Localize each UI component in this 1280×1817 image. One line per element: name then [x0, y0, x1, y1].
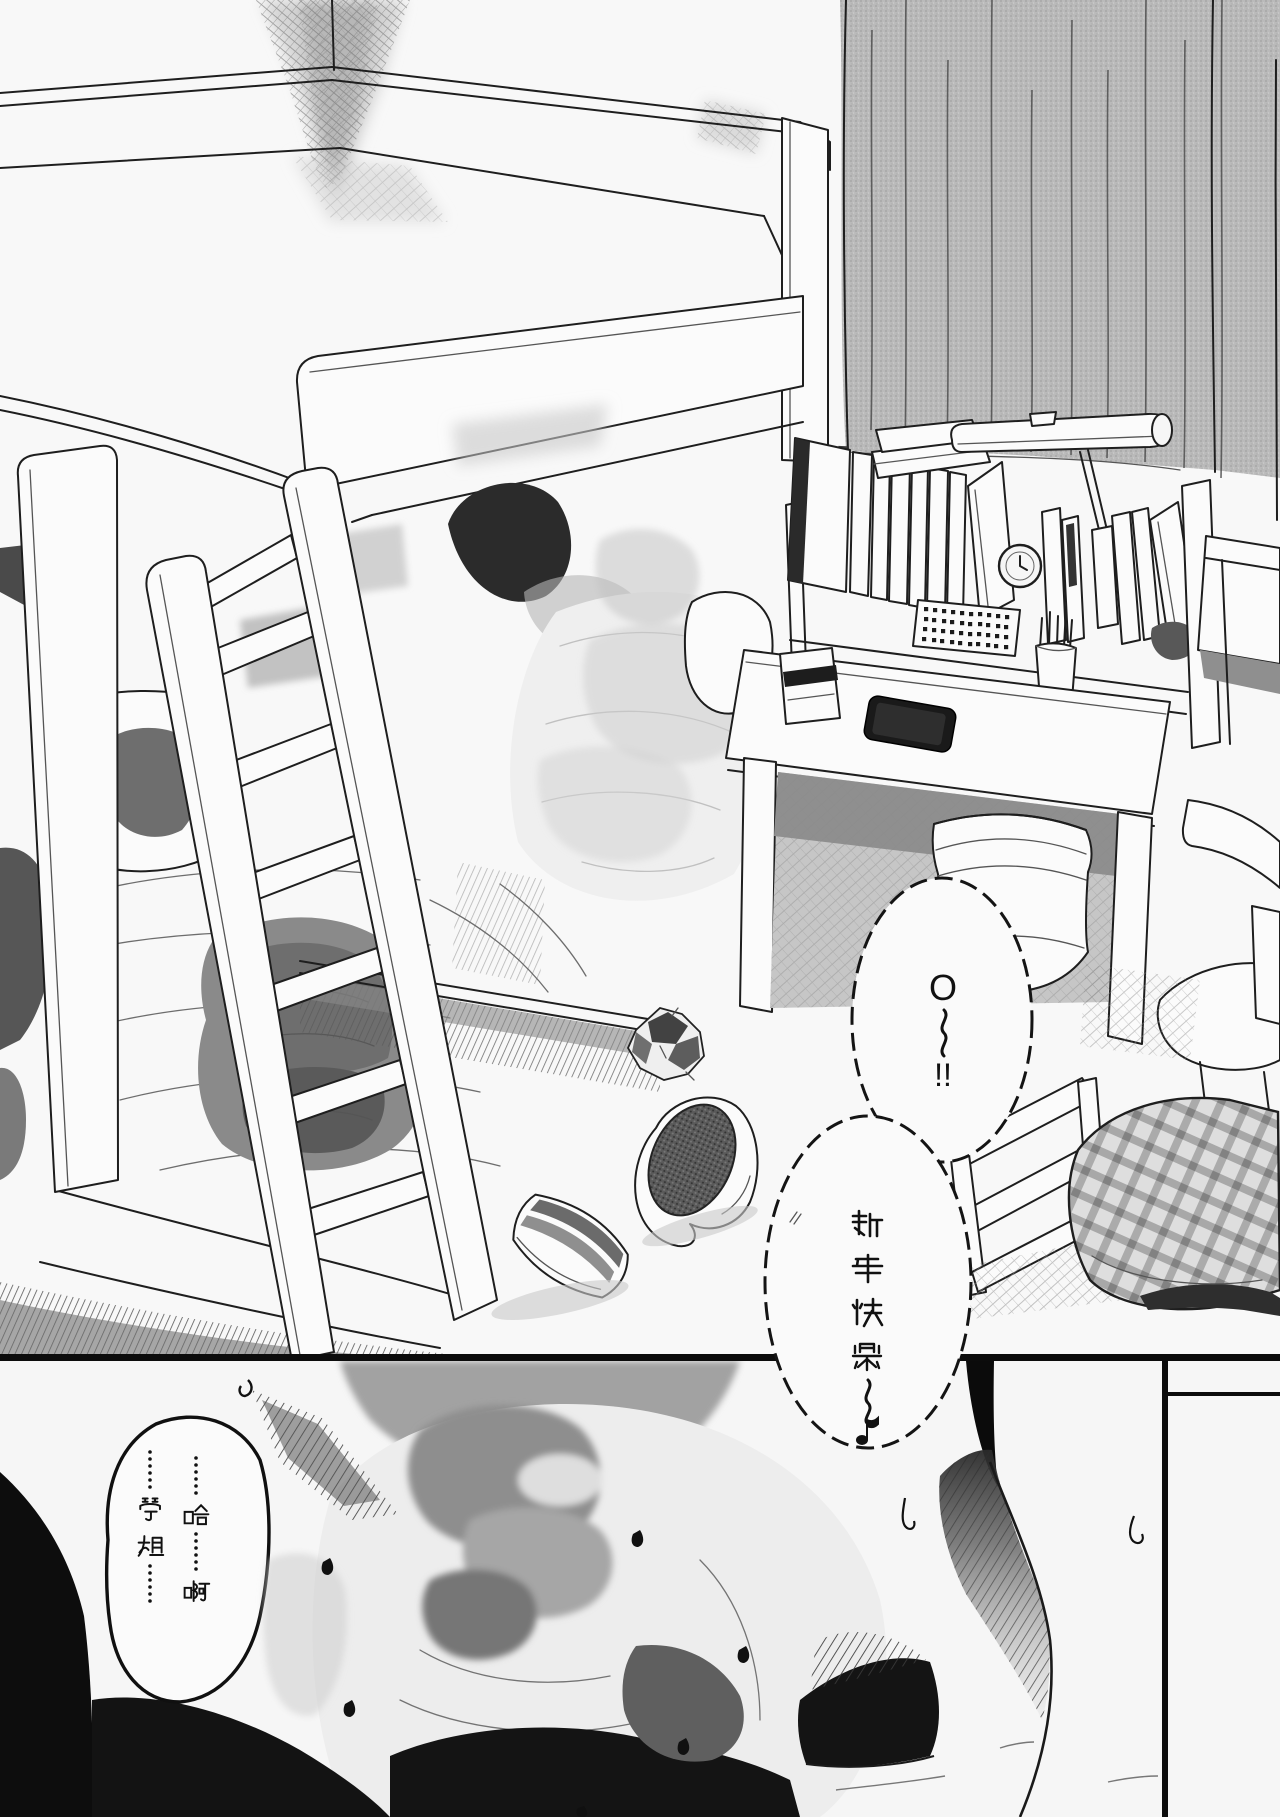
svg-text:O: O	[929, 967, 957, 1008]
svg-text:!!: !!	[934, 1057, 952, 1093]
